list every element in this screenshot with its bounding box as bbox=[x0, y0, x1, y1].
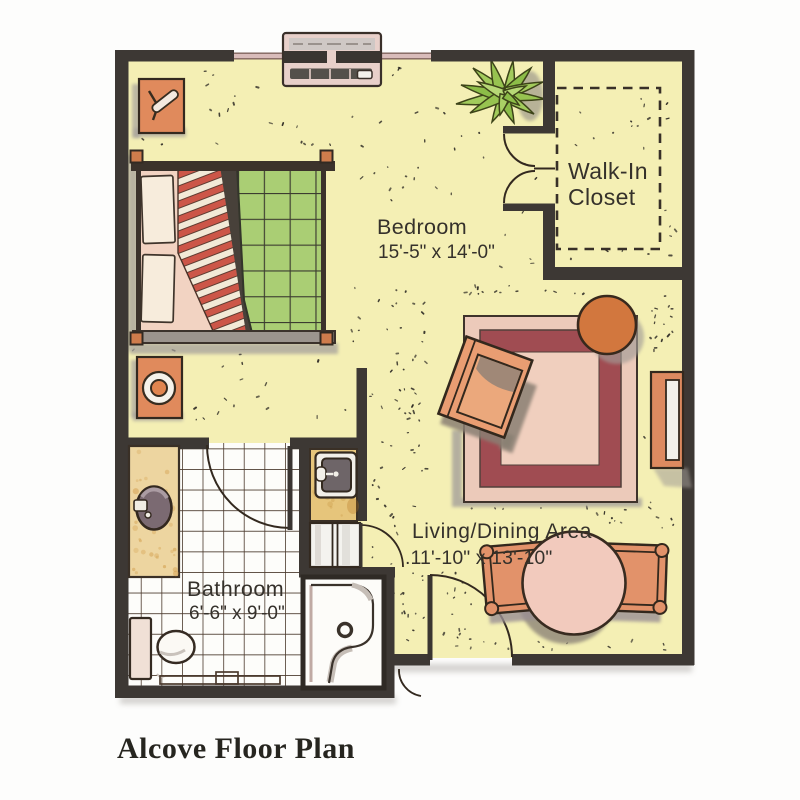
svg-text:Bathroom: Bathroom bbox=[187, 577, 284, 601]
svg-text:Alcove Floor Plan: Alcove Floor Plan bbox=[117, 732, 355, 765]
svg-text:6'-6" x 9'-0": 6'-6" x 9'-0" bbox=[189, 603, 285, 624]
svg-text:Walk-In: Walk-In bbox=[568, 158, 648, 184]
svg-text:15'-5" x 14'-0": 15'-5" x 14'-0" bbox=[378, 242, 495, 263]
svg-text:Closet: Closet bbox=[568, 184, 636, 210]
svg-text:Bedroom: Bedroom bbox=[377, 215, 467, 239]
svg-text:Living/Dining Area: Living/Dining Area bbox=[412, 520, 592, 543]
svg-text:.11'-10" x 13'-10": .11'-10" x 13'-10" bbox=[405, 547, 552, 569]
